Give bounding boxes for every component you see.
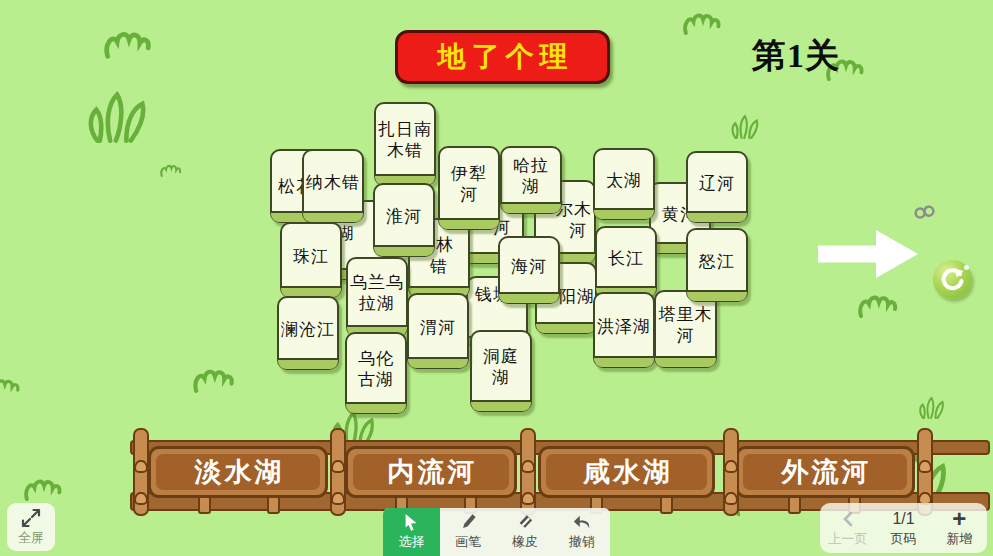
select-tool-label: 选择 — [398, 533, 424, 551]
tile-label-fragment: 错 — [430, 257, 448, 277]
page-number-label: 页码 — [891, 530, 917, 548]
tile-label: 洪泽湖 — [595, 294, 653, 358]
tile-nujiang[interactable]: 怒江 — [686, 228, 748, 302]
circular-arrow-icon — [940, 267, 965, 292]
tile-halahu[interactable]: 哈拉湖 — [500, 146, 562, 214]
tile-lancangjiang[interactable]: 澜沧江 — [277, 296, 339, 370]
fence-post — [330, 428, 346, 516]
category-inland-river[interactable]: 内流河 — [345, 446, 517, 498]
chevron-left-icon — [841, 508, 855, 530]
undo-tool-label: 撤销 — [569, 533, 595, 551]
tile-label-fragment: 河 — [569, 221, 587, 241]
category-outflow-river[interactable]: 外流河 — [735, 446, 915, 498]
tile-label-fragment: 林 — [436, 235, 454, 255]
undo-arrow-icon — [573, 513, 591, 531]
tile-label: 淮河 — [375, 185, 433, 247]
tile-label: 渭河 — [409, 295, 467, 359]
tile-label: 辽河 — [688, 153, 746, 213]
tile-yilihe[interactable]: 伊犁河 — [438, 146, 500, 230]
previous-page-label: 上一页 — [828, 530, 867, 548]
eraser-tool-button[interactable]: 橡皮 — [497, 508, 554, 556]
tile-huaihe[interactable]: 淮河 — [373, 183, 435, 257]
expand-arrows-icon — [21, 508, 41, 528]
tile-changjiang[interactable]: 长江 — [595, 226, 657, 298]
tile-label: 珠江 — [282, 224, 340, 288]
tile-wulanwula[interactable]: 乌兰乌拉湖 — [346, 257, 408, 337]
category-freshwater-lake[interactable]: 淡水湖 — [148, 446, 328, 498]
tile-label: 乌兰乌拉湖 — [348, 259, 406, 327]
category-saltwater-lake[interactable]: 咸水湖 — [538, 446, 715, 498]
tile-hongzehu[interactable]: 洪泽湖 — [593, 292, 655, 368]
tile-zhari-namco[interactable]: 扎日南木错 — [374, 102, 436, 186]
fullscreen-button[interactable]: 全屏 — [7, 503, 55, 551]
select-tool-button[interactable]: 选择 — [383, 508, 440, 556]
fence-post — [133, 428, 149, 516]
pencil-icon — [459, 513, 477, 531]
tile-label: 伊犁河 — [440, 148, 498, 220]
add-page-button[interactable]: + 新增 — [931, 503, 987, 553]
tile-label: 长江 — [597, 228, 655, 288]
tile-label: 乌伦古湖 — [347, 334, 405, 404]
tile-label: 扎日南木错 — [376, 104, 434, 176]
tile-label: 澜沧江 — [279, 298, 337, 360]
tile-label: 纳木错 — [304, 151, 362, 213]
previous-page-button[interactable]: 上一页 — [820, 503, 876, 553]
fence-post — [723, 428, 739, 516]
tile-label: 海河 — [500, 238, 558, 294]
fullscreen-label: 全屏 — [18, 529, 44, 547]
pen-tool-button[interactable]: 画笔 — [440, 508, 497, 556]
page-number-value: 1/1 — [892, 508, 914, 530]
undo-tool-button[interactable]: 撤销 — [553, 508, 610, 556]
page-controls: 上一页 1/1 页码 + 新增 — [820, 503, 987, 553]
pen-tool-label: 画笔 — [455, 533, 481, 551]
tile-liaohe[interactable]: 辽河 — [686, 151, 748, 223]
tile-label: 哈拉湖 — [502, 148, 560, 204]
tile-label: 怒江 — [688, 230, 746, 292]
refresh-button[interactable] — [933, 260, 972, 299]
drawing-toolbar: 选择 画笔 橡皮 撤销 — [383, 508, 610, 556]
tile-label-fragment: 阳湖 — [559, 287, 595, 307]
tile-dongtinghu[interactable]: 洞庭湖 — [470, 330, 532, 412]
game-stage: 地了个理 第1关 松花湖河尔木河黄河钱塘阳湖林错扎日南木错纳木错哈拉湖太湖辽河淮… — [0, 0, 993, 556]
fence-post — [520, 428, 536, 516]
tile-zhujiang[interactable]: 珠江 — [280, 222, 342, 298]
tile-label: 太湖 — [595, 150, 653, 210]
tile-haihe[interactable]: 海河 — [498, 236, 560, 304]
tile-namco[interactable]: 纳木错 — [302, 149, 364, 223]
plus-icon: + — [952, 508, 966, 530]
cursor-arrow-icon — [402, 513, 420, 531]
eraser-icon — [516, 513, 534, 531]
eraser-tool-label: 橡皮 — [512, 533, 538, 551]
page-number-indicator: 1/1 页码 — [876, 503, 932, 553]
tile-label: 洞庭湖 — [472, 332, 530, 402]
tile-weihe[interactable]: 渭河 — [407, 293, 469, 369]
tile-wulungu[interactable]: 乌伦古湖 — [345, 332, 407, 414]
tile-taihu[interactable]: 太湖 — [593, 148, 655, 220]
add-page-label: 新增 — [946, 530, 972, 548]
